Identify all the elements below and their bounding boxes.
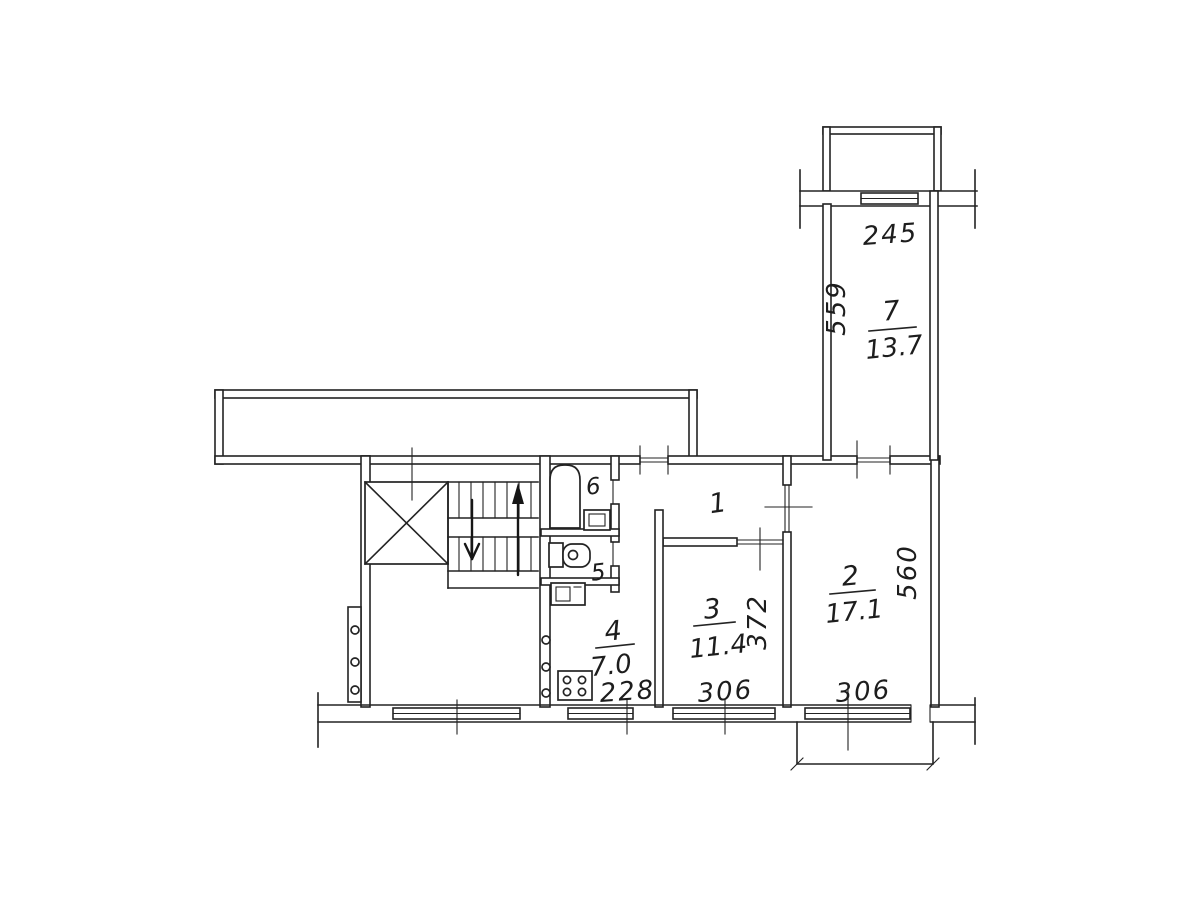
room7-area: 13.7 — [864, 330, 925, 366]
stairs-down-arrow-icon — [465, 500, 479, 559]
window-kitchen — [568, 708, 633, 719]
room3-area: 11.4 — [688, 629, 749, 665]
room6-number: 6 — [585, 473, 602, 500]
bathtub-icon — [550, 465, 580, 528]
room3-width-dim: 306 — [697, 675, 755, 709]
room7-number: 7 — [881, 295, 901, 327]
stove-icon — [558, 671, 592, 700]
floor-plan-canvas: 7 13.7 245 559 1 6 5 2 17.1 560 306 3 11… — [0, 0, 1200, 899]
room2-number: 2 — [840, 560, 860, 592]
room3-number: 3 — [702, 593, 722, 626]
room2-area: 17.1 — [824, 594, 885, 630]
room7-width-dim: 245 — [862, 218, 920, 252]
scanned-floorplan-page: 7 13.7 245 559 1 6 5 2 17.1 560 306 3 11… — [0, 0, 1200, 899]
window-room7 — [861, 193, 918, 204]
gallery-corridor — [215, 390, 697, 464]
elevator-icon — [365, 448, 448, 564]
room2-height-dim: 560 — [893, 544, 923, 600]
balcony-door-opening — [911, 703, 930, 724]
room1-number: 1 — [707, 487, 728, 520]
toilet-icon — [549, 543, 590, 567]
wall-marker-circles — [351, 626, 550, 697]
room4-number: 4 — [603, 615, 623, 648]
stairs-up-arrow-icon — [512, 483, 524, 575]
room7-underline — [869, 327, 916, 331]
room7-height-dim: 559 — [822, 280, 852, 336]
kitchen-sink-icon — [551, 583, 585, 605]
room2-width-dim: 306 — [835, 675, 893, 709]
bath-sink-icon — [584, 510, 610, 530]
window-room2 — [805, 708, 910, 719]
room4-width-dim: 228 — [599, 675, 657, 709]
stairs-icon — [448, 482, 538, 588]
window-room3 — [673, 708, 775, 719]
room3-height-dim: 372 — [743, 594, 773, 650]
balcony-bottom — [791, 722, 939, 770]
room5-number: 5 — [590, 559, 607, 586]
